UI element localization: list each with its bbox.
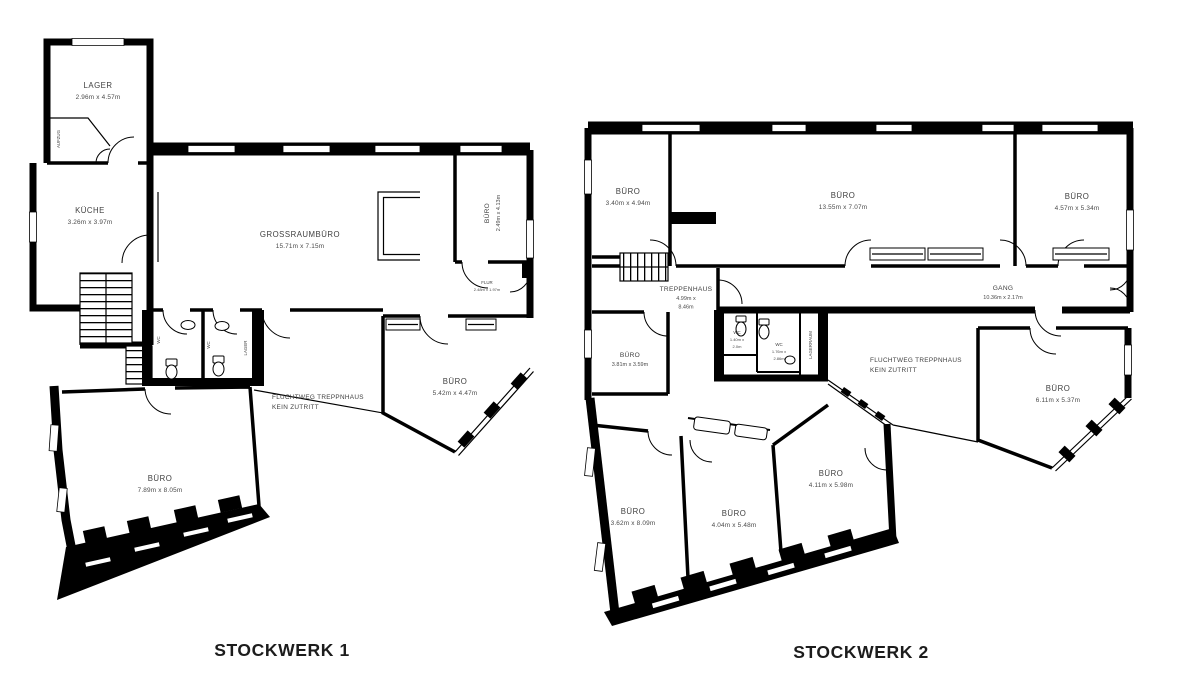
toilet-tank (736, 316, 746, 322)
escape-route-note: FLUCHTWEG TREPPNHAUS (272, 394, 364, 401)
room-label: BÜRO (722, 509, 747, 518)
escape-route-note: KEIN ZUTRITT (870, 367, 917, 374)
toilet-bowl (213, 362, 224, 376)
window-slit (585, 448, 596, 477)
room-dims: 3.62m x 8.09m (611, 520, 656, 527)
room-dims: 15.71m x 7.15m (276, 243, 325, 250)
room-label: BÜRO (483, 203, 491, 223)
floor2-caption: STOCKWERK 2 (793, 642, 929, 662)
room-dims: 2.86m (773, 356, 785, 361)
room-label: BÜRO (1046, 384, 1071, 393)
room-label: BÜRO (443, 377, 468, 386)
room-dims: 2.49m x 4.13m (496, 194, 502, 231)
room-dims: 10.36m x 2.17m (983, 295, 1023, 301)
room-dims: 3.81m x 3.59m (612, 362, 649, 368)
floorplan-canvas: LAGER 2.96m x 4.57m KÜCHE 3.26m x 3.97m … (0, 0, 1179, 700)
room-label: WC (156, 336, 161, 343)
room-dims: 2.48m x 1.97m (474, 287, 501, 292)
wall-west-slant (590, 398, 616, 622)
room-label: WC (733, 330, 740, 335)
floor2-plan: BÜRO 3.40m x 4.94m BÜRO 13.55m x 7.07m B… (585, 125, 1134, 663)
toilet-bowl (759, 325, 769, 339)
bench (693, 417, 730, 435)
room-dims: 5.42m x 4.47m (433, 390, 478, 397)
pentagon-window-piers (458, 372, 528, 447)
room-dims: 4.99m x (676, 296, 696, 302)
room-label: BÜRO (148, 474, 173, 483)
room-dims: 1.76m x (772, 349, 786, 354)
window-slit (594, 543, 605, 572)
facade-window-piers (632, 529, 855, 605)
room-label: AUFZUG (56, 129, 61, 148)
room-label: BÜRO (620, 351, 640, 359)
bench (734, 424, 767, 440)
room-label: BÜRO (1065, 192, 1090, 201)
room-dims: 7.89m x 8.05m (138, 487, 183, 494)
room-label: TREPPENHAUS (660, 286, 713, 293)
room-label: GANG (993, 285, 1014, 292)
floor1-caption: STOCKWERK 1 (214, 640, 350, 660)
floor1-plan: LAGER 2.96m x 4.57m KÜCHE 3.26m x 3.97m … (30, 39, 534, 661)
room-dims: 1.40m x (730, 337, 744, 342)
room-label: KÜCHE (75, 206, 105, 215)
room-dims: 4.11m x 5.98m (809, 482, 853, 489)
escape-route-note: KEIN ZUTRITT (272, 404, 319, 411)
room-dims: 4.57m x 5.34m (1055, 205, 1100, 212)
room-dims: 6.11m x 5.37m (1036, 397, 1080, 404)
benches (693, 417, 767, 441)
room-label: LAGERRAUM (808, 331, 813, 359)
pentagon-window-piers (1058, 398, 1125, 463)
radiators (870, 248, 1109, 260)
wall-piers (670, 212, 828, 378)
room-label: BÜRO (831, 191, 856, 200)
wall-west-office (54, 386, 73, 556)
room-label: BÜRO (616, 187, 641, 196)
toilet-bowl (166, 365, 177, 379)
railing-tick (875, 411, 886, 421)
room-dims: 2.0m (733, 344, 743, 349)
railing-ticks (841, 387, 886, 421)
room-label: FLUR (481, 280, 492, 285)
room-label: GROSSRAUMBÜRO (260, 230, 340, 239)
escape-route-note: FLUCHTWEG TREPPNHAUS (870, 357, 962, 364)
floorplan-page: LAGER 2.96m x 4.57m KÜCHE 3.26m x 3.97m … (0, 0, 1179, 700)
wc-fixtures (166, 321, 229, 380)
room-label: BÜRO (621, 507, 646, 516)
room-label: LAGER (243, 341, 248, 356)
room-dims: 2.96m x 4.57m (76, 94, 121, 101)
sink (181, 321, 195, 330)
room-dims: 13.55m x 7.07m (819, 204, 868, 211)
sink (215, 322, 229, 331)
door-swings (96, 137, 530, 414)
toilet-tank (759, 319, 769, 325)
room-dims: 8.46m (678, 305, 694, 311)
sink (785, 356, 795, 364)
wc-fixtures (736, 316, 795, 364)
room-label: BÜRO (819, 469, 844, 478)
window-slit (49, 425, 59, 451)
room-label: WC (206, 341, 211, 348)
radiators (386, 319, 496, 330)
facade-band-south (604, 528, 899, 626)
room-dims: 3.26m x 3.97m (68, 219, 113, 226)
room-dims: 4.04m x 5.48m (712, 522, 757, 529)
room-label: WC (775, 342, 782, 347)
room-label: LAGER (84, 81, 113, 90)
room-dims: 3.40m x 4.94m (606, 200, 651, 207)
